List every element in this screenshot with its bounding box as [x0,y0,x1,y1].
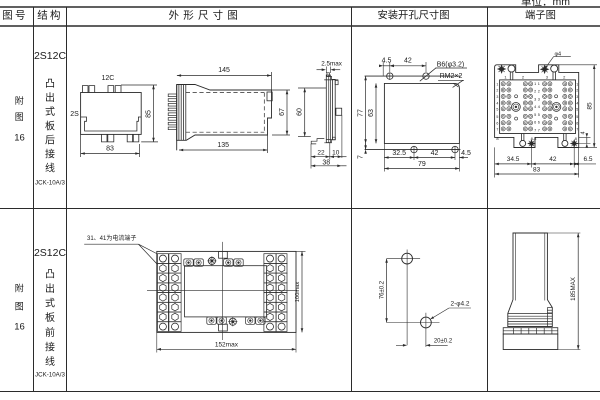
svg-text:8-8: 8-8 [531,136,538,141]
svg-text:185MAX: 185MAX [570,277,577,301]
svg-text:135: 135 [217,142,229,149]
svg-text:42: 42 [549,156,557,163]
svg-text:20±0.2: 20±0.2 [434,339,453,345]
svg-text:附: 附 [15,95,24,106]
svg-text:145: 145 [218,67,230,74]
svg-text:42: 42 [404,58,412,65]
svg-text:式: 式 [45,105,55,118]
svg-text:图号: 图号 [2,10,27,22]
svg-text:3: 3 [546,75,549,80]
svg-text:4: 4 [581,131,587,134]
svg-text:4: 4 [534,105,536,109]
svg-text:38: 38 [322,159,330,166]
svg-text:6.5: 6.5 [583,156,592,163]
svg-text:前: 前 [45,326,55,339]
svg-text:接: 接 [45,340,55,353]
svg-text:5: 5 [576,107,578,111]
svg-text:JCK-10A/3: JCK-10A/3 [35,179,65,186]
svg-text:7: 7 [496,127,498,131]
svg-text:4: 4 [576,102,578,106]
svg-text:2: 2 [563,75,566,80]
svg-text:6: 6 [496,121,498,125]
svg-text:线: 线 [45,162,55,175]
svg-text:7: 7 [358,155,365,159]
svg-text:线: 线 [45,355,55,368]
svg-text:4: 4 [496,102,498,106]
svg-text:凸: 凸 [45,78,55,90]
svg-text:3: 3 [576,95,578,99]
svg-text:2S12C: 2S12C [34,247,67,259]
svg-text:凸: 凸 [45,268,55,280]
svg-text:图: 图 [15,112,24,122]
svg-text:2: 2 [534,90,536,94]
svg-text:4.5: 4.5 [382,58,392,65]
svg-text:100max: 100max [295,282,301,303]
svg-text:RM2×2: RM2×2 [440,73,463,80]
svg-text:接: 接 [45,148,55,161]
svg-text:83: 83 [106,146,114,153]
svg-text:2-φ4.2: 2-φ4.2 [450,301,469,308]
svg-text:2S12C: 2S12C [34,50,67,62]
svg-text:1: 1 [538,82,540,86]
svg-text:2: 2 [496,89,498,93]
svg-text:60: 60 [297,108,304,116]
svg-text:板: 板 [45,119,55,132]
svg-text:152max: 152max [215,342,239,349]
svg-text:10: 10 [332,149,340,156]
svg-text:85: 85 [146,110,153,118]
svg-text:出: 出 [45,282,55,295]
svg-text:2: 2 [522,75,525,80]
svg-text:6: 6 [534,121,536,125]
svg-text:16: 16 [14,322,25,333]
svg-text:7: 7 [576,127,578,131]
svg-text:67: 67 [279,108,286,116]
svg-text:85: 85 [586,102,593,110]
svg-text:1: 1 [576,82,578,86]
svg-text:5: 5 [496,115,498,119]
svg-text:31、41为电流端子: 31、41为电流端子 [87,234,136,242]
svg-text:2S: 2S [70,111,79,118]
svg-text:2: 2 [576,89,578,93]
svg-text:外形尺寸图: 外形尺寸图 [169,9,243,22]
svg-text:42: 42 [431,150,439,157]
svg-text:单位：mm: 单位：mm [521,0,570,8]
svg-text:B6(φ3.2): B6(φ3.2) [437,62,465,69]
svg-text:3: 3 [538,97,540,101]
svg-text:4: 4 [538,105,540,109]
svg-text:端子图: 端子图 [525,9,556,22]
svg-text:图: 图 [15,301,24,311]
svg-text:5: 5 [496,107,498,111]
svg-text:7: 7 [538,128,540,132]
svg-text:22: 22 [317,149,325,156]
svg-text:16: 16 [14,132,25,143]
svg-text:5: 5 [538,113,540,117]
svg-text:3: 3 [496,95,498,99]
svg-text:2: 2 [538,90,540,94]
svg-text:1: 1 [504,75,507,80]
svg-text:7: 7 [534,128,536,132]
svg-text:77: 77 [358,109,365,117]
svg-text:34.5: 34.5 [507,156,520,163]
svg-text:出: 出 [45,91,55,104]
svg-text:32.5: 32.5 [392,150,406,157]
svg-text:结构: 结构 [37,9,62,22]
svg-text:12C: 12C [101,75,114,82]
svg-text:83: 83 [533,167,541,174]
svg-text:板: 板 [45,311,55,324]
svg-text:79: 79 [418,161,426,168]
svg-text:2.5max: 2.5max [321,61,343,68]
svg-text:5: 5 [576,115,578,119]
svg-text:附: 附 [15,283,24,294]
svg-text:JCK-10A/3: JCK-10A/3 [35,372,65,379]
svg-text:5: 5 [534,113,536,117]
svg-text:1: 1 [534,82,536,86]
svg-text:后: 后 [45,134,55,146]
svg-text:8: 8 [575,136,578,141]
svg-text:6: 6 [576,121,578,125]
svg-text:1: 1 [496,82,498,86]
svg-text:安装开孔尺寸图: 安装开孔尺寸图 [377,9,449,22]
svg-text:76±0.2: 76±0.2 [380,280,386,299]
svg-text:式: 式 [45,297,55,310]
svg-text:8: 8 [496,136,499,141]
svg-text:6: 6 [538,121,540,125]
svg-text:4.5: 4.5 [461,150,471,157]
svg-text:63: 63 [368,109,375,117]
svg-text:3: 3 [534,97,536,101]
